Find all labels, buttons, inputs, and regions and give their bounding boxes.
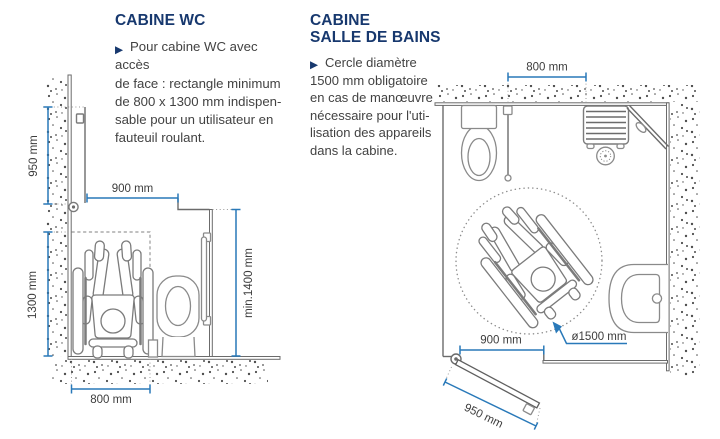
bath-toilet [462,106,497,181]
bath-wall-stipple-right [671,104,700,376]
wc-dim-950-label: 950 mm [28,135,40,177]
bath-dim-800-label: 800 mm [526,62,568,74]
bath-dim-800: 800 mm [508,62,586,82]
bullet-arrow-icon: ▶ [310,57,318,75]
bath-shower-seat [584,106,629,149]
bath-dim-950: 950 mm [443,378,537,430]
wc-right-wall [210,210,213,357]
wc-floor-stipple [52,360,268,384]
wc-dim-1300-label: 1300 mm [27,271,39,319]
bath-bottom-wall [543,361,668,364]
wc-toilet [149,276,200,357]
wc-dim-800: 800 mm [72,385,151,407]
wc-body-text: Pour cabine WC avec accès de face : rect… [115,39,281,145]
bath-dim-900: 900 mm [460,335,544,355]
wc-dim-1300: 1300 mm [27,232,53,356]
wc-left-wall [68,75,71,358]
bath-wheelchair-user [462,191,597,333]
wc-dim-900-label: 900 mm [112,183,154,195]
bullet-arrow-icon: ▶ [115,41,123,59]
bathroom-section-title-line2: SALLE DE BAINS [310,29,446,46]
wc-dim-min1400-label: min.1400 mm [243,248,255,318]
bathroom-body-text: Cercle diamètre 1500 mm obligatoire en c… [310,55,433,158]
bath-dim-900-label: 900 mm [480,335,522,347]
wc-wall-stipple-left [46,77,68,357]
wc-section: CABINE WC ▶ Pour cabine WC avec accès de… [115,12,295,148]
bath-dim-1500-label: ø1500 mm [572,331,627,343]
wc-section-body: ▶ Pour cabine WC avec accès de face : re… [115,38,293,148]
bathroom-section-title-line1: CABINE [310,12,446,29]
page: 950 mm 900 mm 1300 mm 800 mm [0,0,720,439]
wc-door-handle [77,114,84,123]
bath-wall-stipple-top [437,85,699,102]
bath-dim-950-label: 950 mm [462,402,505,431]
bath-corner-door [627,106,669,150]
bath-grab-bar [504,106,513,182]
wc-wall-step [178,198,210,210]
bathroom-section-body: ▶ Cercle diamètre 1500 mm obligatoire en… [310,54,444,160]
wc-dim-800-label: 800 mm [90,394,132,406]
bathroom-section: CABINE SALLE DE BAINS ▶ Cercle diamètre … [310,12,446,160]
wc-wheelchair-user [73,241,153,358]
bath-washbasin [609,265,668,333]
wc-dim-900: 900 mm [87,183,178,203]
bathroom-diagram: 800 mm 900 mm 950 mm ø1500 mm [435,62,700,431]
wc-section-title: CABINE WC [115,12,295,29]
bath-washbasin-faucet [652,294,661,303]
bath-floor-drain [597,147,615,165]
wc-dim-min1400: min.1400 mm [232,210,256,357]
